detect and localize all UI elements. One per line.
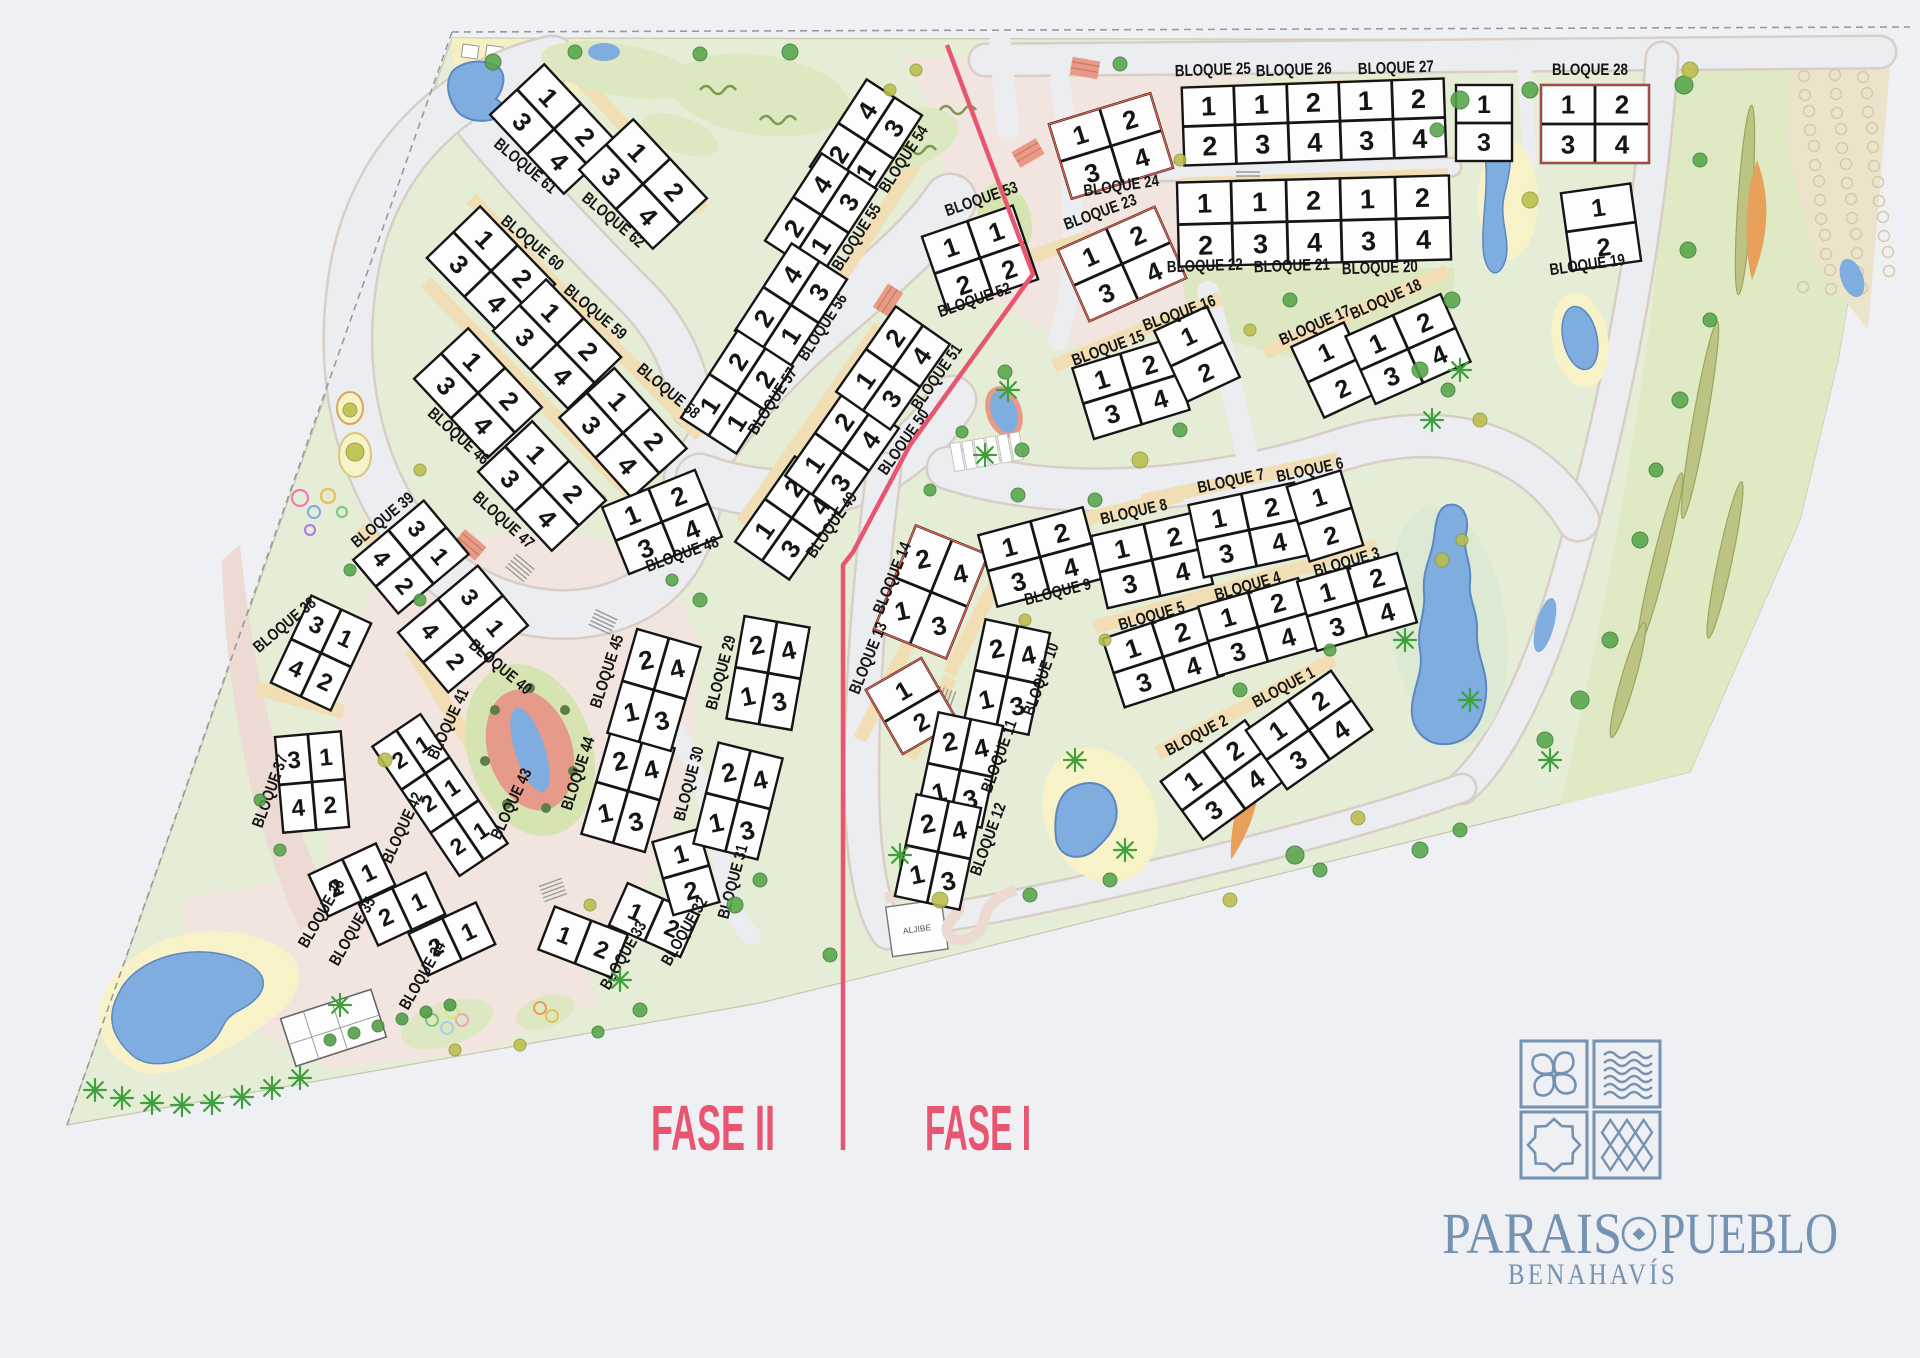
svg-text:1: 1 [1561,89,1575,119]
svg-text:3: 3 [1255,129,1271,160]
svg-text:BLOQUE 25: BLOQUE 25 [1175,60,1252,81]
svg-text:3: 3 [1253,229,1269,259]
svg-text:PUEBLO: PUEBLO [1660,1201,1838,1266]
svg-text:1: 1 [1253,89,1269,120]
svg-text:4: 4 [1307,228,1323,258]
svg-text:BLOQUE 27: BLOQUE 27 [1358,58,1435,79]
svg-text:3: 3 [1359,126,1375,157]
svg-text:2: 2 [1306,186,1322,216]
svg-text:1: 1 [1357,86,1373,117]
svg-text:1: 1 [1197,188,1213,218]
svg-text:4: 4 [1416,225,1432,255]
svg-text:3: 3 [1477,129,1491,157]
svg-text:1: 1 [1200,91,1216,122]
svg-text:2: 2 [1305,87,1321,118]
svg-text:1: 1 [1360,184,1376,214]
svg-text:4: 4 [1307,127,1323,158]
svg-text:BLOQUE 21: BLOQUE 21 [1254,256,1331,277]
svg-text:3: 3 [1361,226,1377,256]
svg-text:4: 4 [1412,124,1428,155]
svg-text:1: 1 [318,744,334,772]
svg-text:PARAIS: PARAIS [1442,1201,1622,1266]
svg-text:2: 2 [1410,84,1426,115]
svg-text:FASE I: FASE I [925,1092,1031,1164]
svg-text:BLOQUE 22: BLOQUE 22 [1167,256,1244,277]
svg-text:1: 1 [1252,187,1268,217]
svg-text:2: 2 [1202,131,1218,162]
svg-text:1: 1 [1477,91,1491,119]
svg-text:BLOQUE 20: BLOQUE 20 [1342,258,1419,279]
svg-text:FASE II: FASE II [651,1092,775,1164]
svg-text:3: 3 [1561,129,1575,159]
svg-text:4: 4 [1615,129,1630,159]
svg-text:BLOQUE 26: BLOQUE 26 [1256,60,1333,81]
svg-text:2: 2 [322,792,338,820]
svg-text:BENAHAVÍS: BENAHAVÍS [1508,1258,1678,1291]
svg-text:BLOQUE 28: BLOQUE 28 [1552,61,1628,79]
svg-text:2: 2 [1615,89,1629,119]
svg-text:2: 2 [1415,183,1431,213]
